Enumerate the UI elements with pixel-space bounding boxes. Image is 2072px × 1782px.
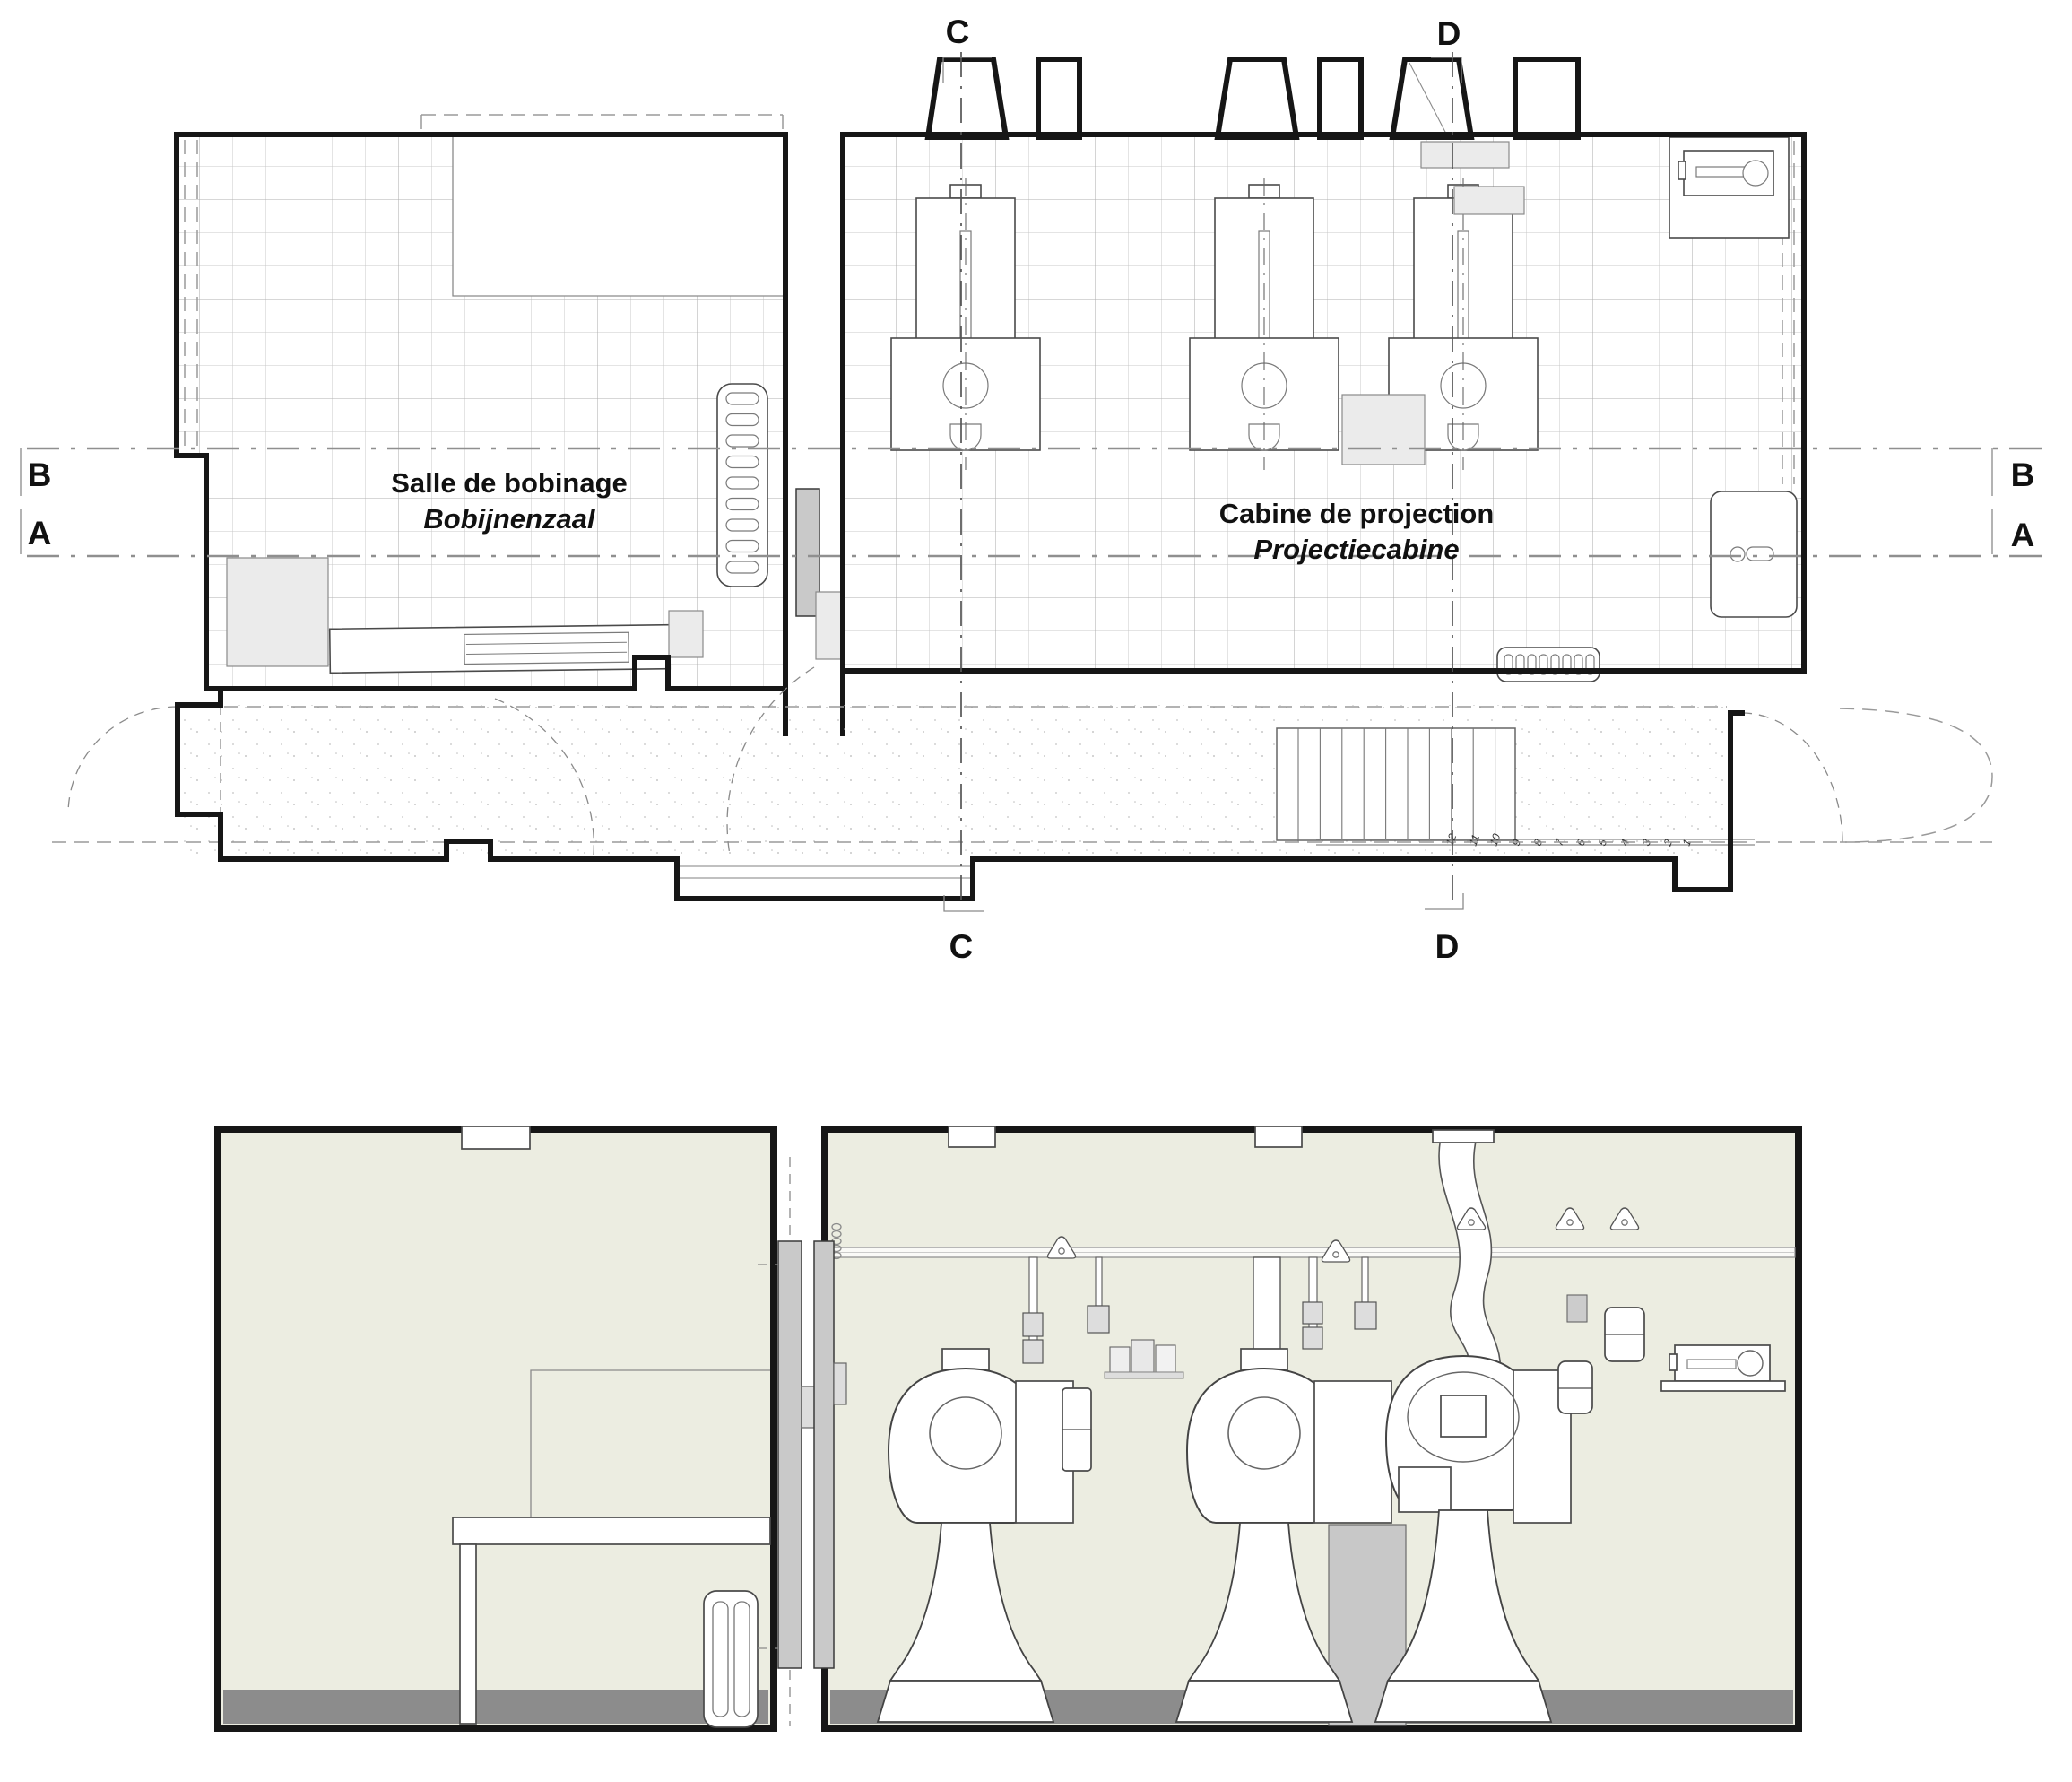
winding-room-plan (177, 115, 785, 689)
switch-box-1 (1605, 1308, 1644, 1361)
worktable-plan (227, 558, 328, 666)
marker-c-top: C (946, 13, 970, 50)
drawing-svg: 12 11 10 9 8 7 6 5 4 3 2 1 (0, 0, 2072, 1782)
section-door-right-room (814, 1241, 834, 1668)
projection-room-plan (843, 59, 1804, 682)
radiator-section (704, 1591, 758, 1727)
winding-room-section (218, 1126, 774, 1728)
architectural-drawing: 12 11 10 9 8 7 6 5 4 3 2 1 (0, 0, 2072, 1782)
projection-room-section (814, 1126, 1799, 1728)
marker-c-bottom: C (949, 928, 974, 965)
vent-section-2 (949, 1126, 995, 1147)
marker-d-bottom: D (1435, 928, 1460, 965)
junction-box (1567, 1295, 1587, 1322)
rewinder-shelf-section (1661, 1345, 1785, 1391)
switch-box-2 (1558, 1361, 1592, 1413)
corridor-plan: 12 11 10 9 8 7 6 5 4 3 2 1 (52, 667, 1992, 899)
equipment-box-plan (1342, 395, 1425, 465)
workbench-plan (330, 625, 671, 674)
marker-d-top: D (1437, 15, 1461, 52)
vent-section (462, 1126, 530, 1149)
vent-grille-plan-2 (1454, 187, 1524, 214)
roof-edge-dashed (421, 115, 783, 135)
rewinder-table-plan (1669, 137, 1789, 238)
projector-window (1441, 1395, 1486, 1437)
radiator-plan-2 (1497, 648, 1600, 682)
room-label-projection-fr: Cabine de projection (1219, 498, 1495, 529)
section-view (218, 1126, 1799, 1728)
marker-b-left: B (28, 456, 52, 493)
roof-ducts (928, 59, 1578, 137)
door-swing-left (68, 707, 178, 814)
marker-b-right: B (2011, 456, 2035, 493)
vent-grille-plan (1421, 142, 1509, 168)
room-label-winding-fr: Salle de bobinage (391, 467, 628, 499)
hall-dashed-cap-right (1840, 708, 1992, 842)
cabinet-plan-small (669, 611, 703, 657)
vent-section-3 (1255, 1126, 1302, 1147)
room-label-projection-nl: Projectiecabine (1253, 534, 1459, 565)
ceiling-void (453, 137, 785, 296)
floor-strip-left (223, 1690, 768, 1724)
marker-a-left: A (28, 515, 52, 552)
door-swing-right (1742, 713, 1842, 842)
room-label-winding-nl: Bobijnenzaal (423, 503, 596, 535)
marker-a-right: A (2011, 517, 2035, 553)
door-plan (1711, 491, 1797, 617)
floor-plan: 12 11 10 9 8 7 6 5 4 3 2 1 (21, 13, 2045, 965)
